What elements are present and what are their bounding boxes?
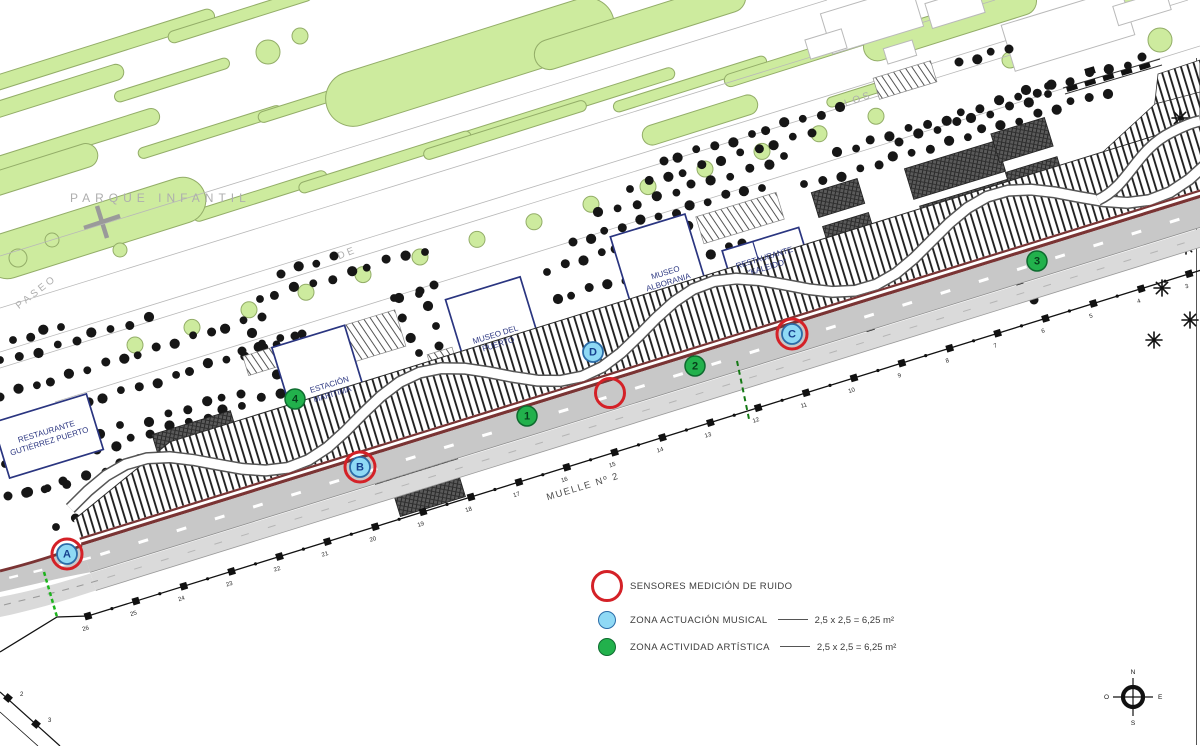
marker-musical-A[interactable]: A [52, 539, 82, 569]
svg-text:4: 4 [292, 394, 299, 406]
legend: SENSORES MEDICIÓN DE RUIDO ZONA ACTUACIÓ… [584, 570, 896, 665]
bollard-number: 12 [752, 417, 761, 425]
bollard-number: 6 [1041, 328, 1047, 335]
svg-text:2: 2 [692, 361, 698, 373]
svg-text:B: B [356, 462, 364, 474]
marker-musical-B[interactable]: B [345, 452, 375, 482]
marker-artistic-2[interactable]: 2 [685, 356, 705, 376]
compass-rose: NSEO [1104, 669, 1163, 727]
compass-letter: E [1158, 694, 1163, 701]
legend-item-sensors: SENSORES MEDICIÓN DE RUIDO [584, 570, 896, 602]
bollard-number: 10 [848, 387, 857, 395]
label-parque-infantil: PARQUE INFANTIL [70, 191, 251, 205]
marker-musical-D[interactable]: D [583, 342, 603, 362]
bollard-number: 19 [417, 521, 426, 529]
bollard-number: 26 [82, 625, 91, 633]
compass-letter: N [1131, 669, 1136, 676]
legend-dash [780, 646, 810, 647]
bollard-number: 18 [465, 506, 474, 514]
pier-number: 2 [20, 692, 24, 698]
bollard-number: 23 [225, 581, 234, 589]
svg-text:3: 3 [1034, 256, 1040, 268]
bollard-number: 16 [561, 476, 570, 484]
bollard-number: 15 [608, 462, 617, 470]
compass-letter: S [1131, 720, 1136, 727]
svg-text:C: C [788, 329, 796, 341]
bollard-number: 25 [130, 610, 139, 618]
svg-text:D: D [589, 347, 597, 359]
legend-item-musical-zone: ZONA ACTUACIÓN MUSICAL 2,5 x 2,5 = 6,25 … [584, 611, 896, 629]
bollard-number: 24 [178, 595, 187, 603]
marker-artistic-1[interactable]: 1 [517, 406, 537, 426]
marker-artistic-4[interactable]: 4 [285, 389, 305, 409]
bollard-number: 20 [369, 536, 378, 544]
bollard-number: 8 [945, 358, 951, 365]
compass-letter: O [1104, 694, 1109, 701]
pier-number: 3 [48, 718, 52, 724]
noise-sensor-icon [591, 570, 623, 602]
svg-text:A: A [63, 549, 71, 561]
bollard-number: 3 [1184, 283, 1190, 290]
bollard-number: 14 [656, 447, 665, 455]
marker-musical-C[interactable]: C [777, 319, 807, 349]
bollard-number: 11 [800, 402, 808, 410]
bollard-number: 22 [273, 566, 282, 574]
bollard-number: 4 [1137, 298, 1143, 305]
legend-dash [778, 619, 808, 620]
bollard-number: 13 [704, 432, 713, 440]
bollard-number: 7 [993, 343, 999, 350]
bollard-number: 5 [1089, 313, 1095, 320]
legend-item-artistic-zone: ZONA ACTIVIDAD ARTÍSTICA 2,5 x 2,5 = 6,2… [584, 638, 896, 656]
svg-text:1: 1 [524, 411, 530, 423]
artistic-zone-icon [598, 638, 616, 656]
musical-zone-icon [598, 611, 616, 629]
bollard-number: 17 [513, 491, 522, 499]
bollard-number: 9 [897, 373, 903, 380]
marker-artistic-3[interactable]: 3 [1027, 251, 1047, 271]
bollard-number: 21 [321, 551, 330, 559]
secondary-pier: 23 [0, 692, 60, 746]
site-plan-page: 3456789101112131415161718192021222324252… [0, 0, 1200, 746]
